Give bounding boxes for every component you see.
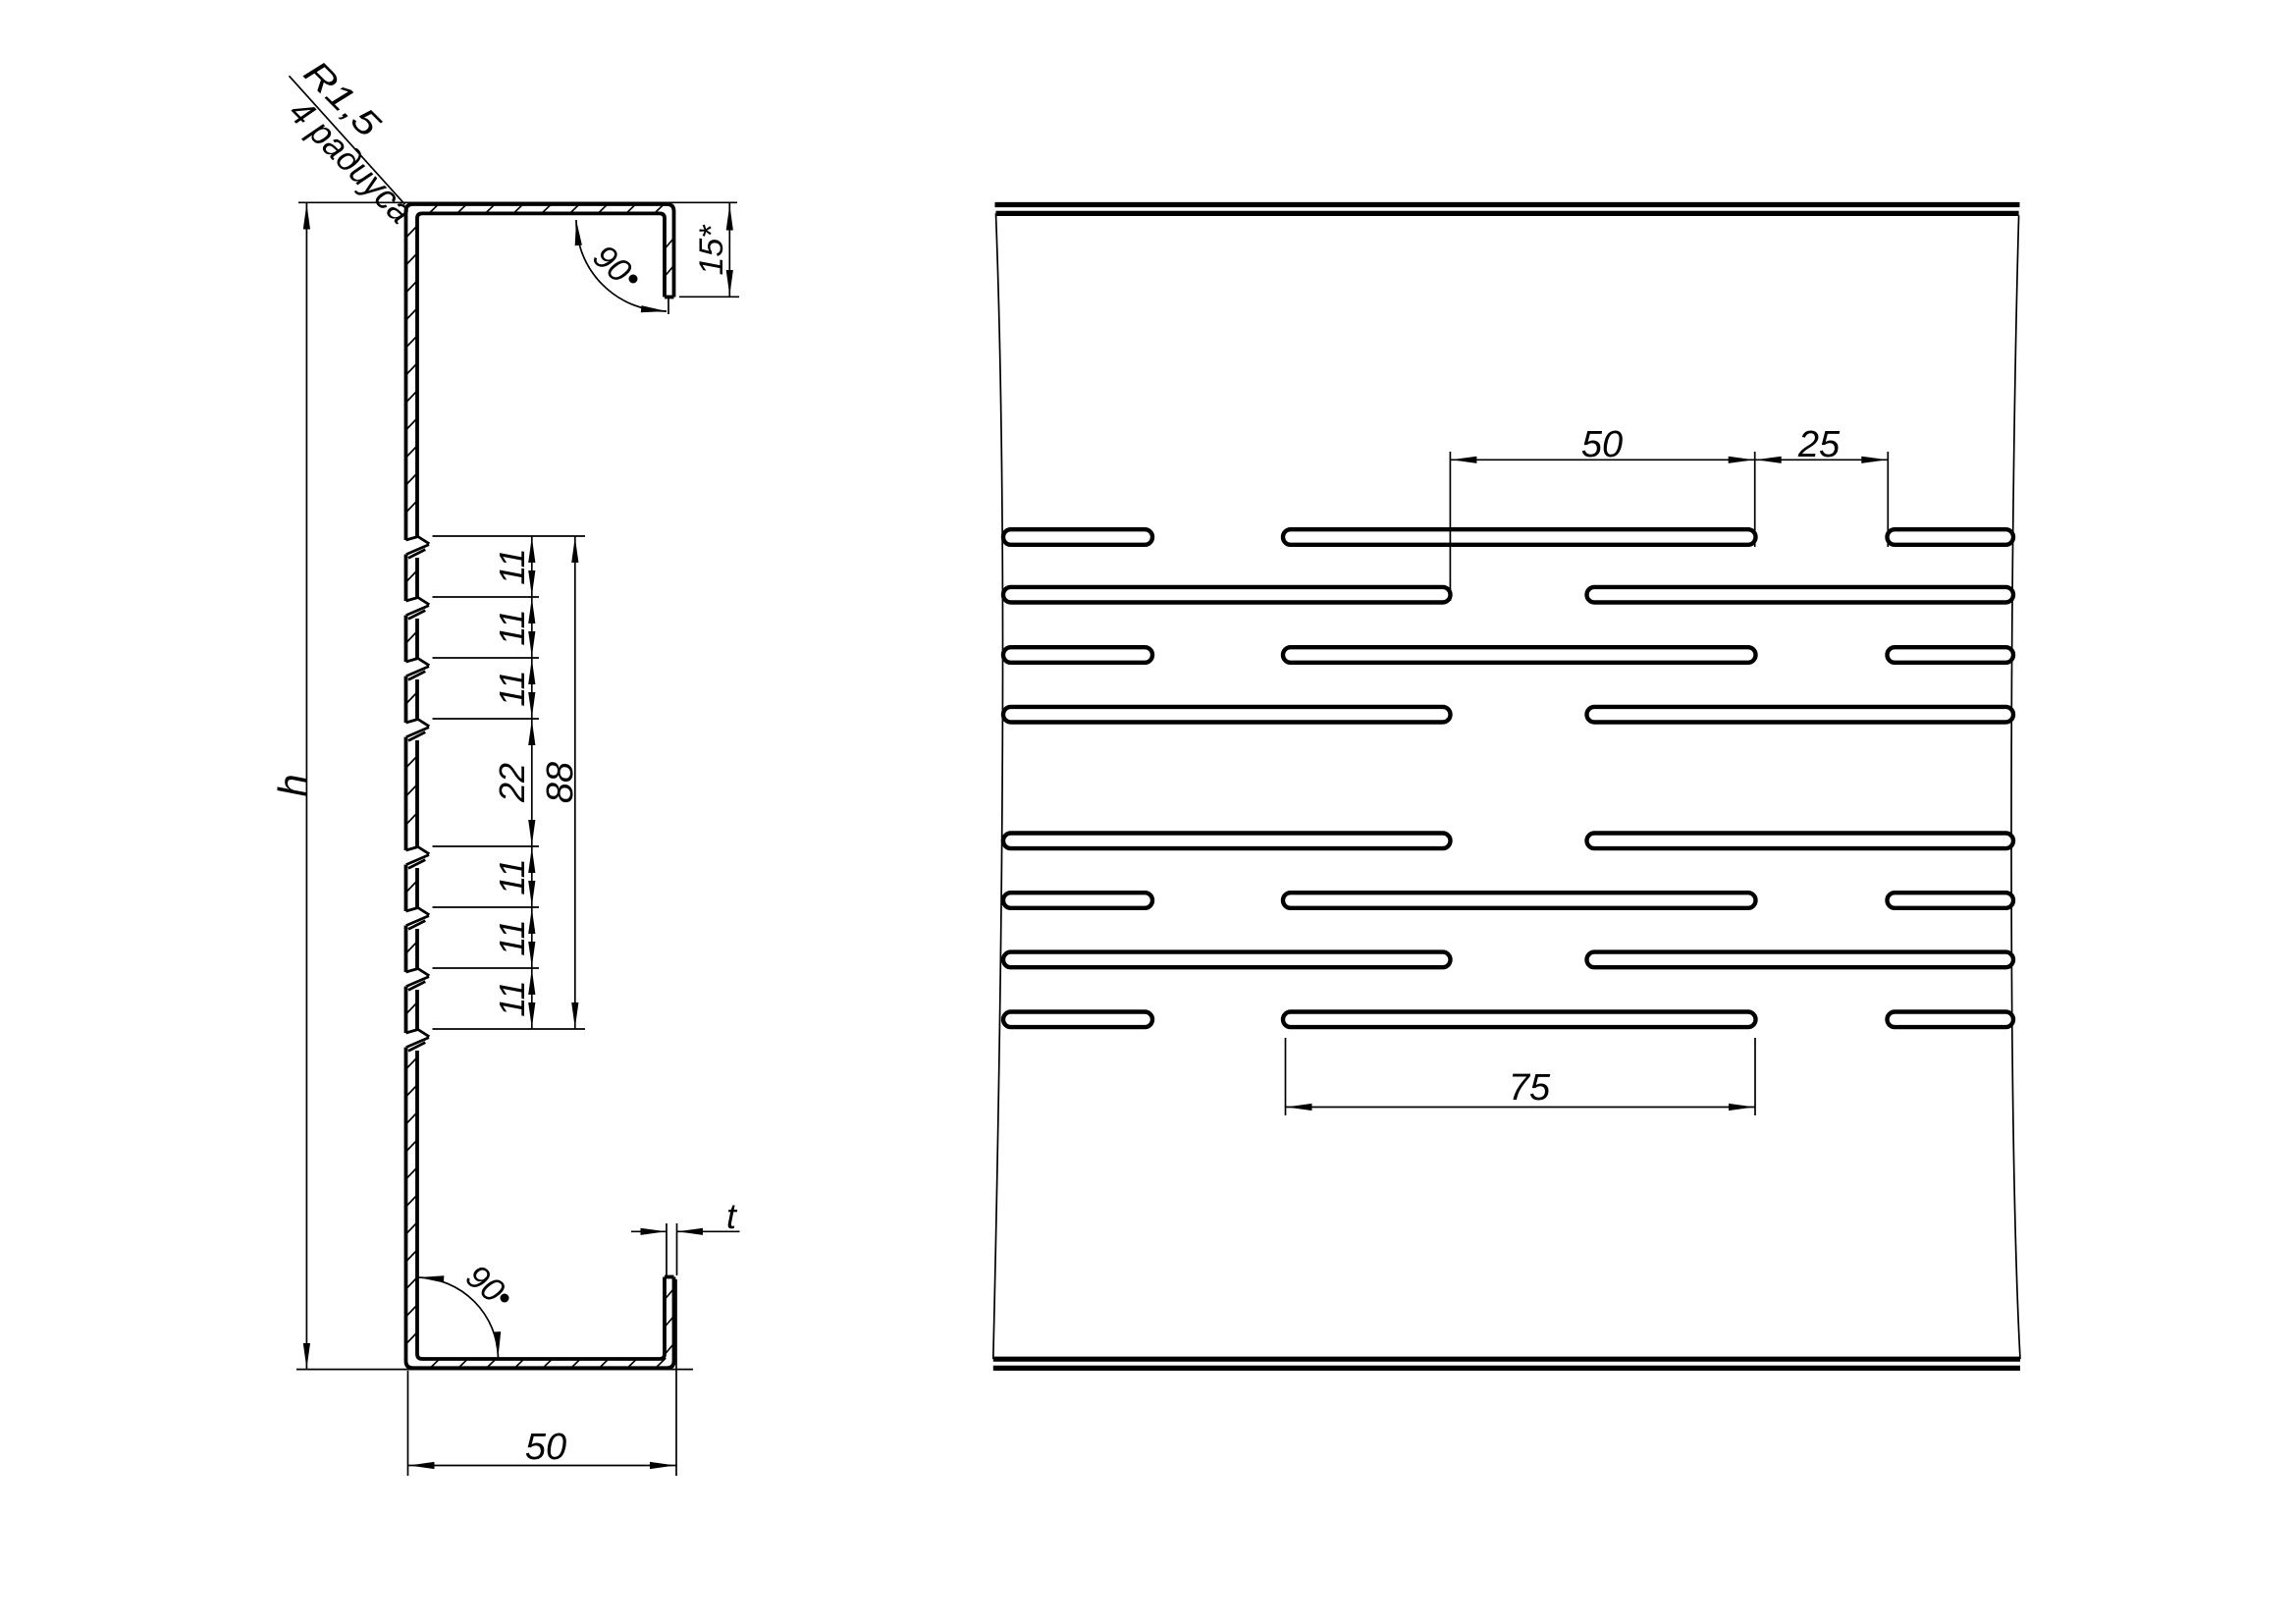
svg-text:25: 25 bbox=[1797, 424, 1841, 465]
svg-text:15*: 15* bbox=[693, 224, 730, 276]
svg-text:50: 50 bbox=[1581, 424, 1623, 465]
svg-text:11: 11 bbox=[492, 858, 532, 894]
svg-text:22: 22 bbox=[492, 763, 532, 803]
svg-text:11: 11 bbox=[492, 670, 532, 706]
svg-text:h: h bbox=[270, 774, 316, 796]
svg-text:11: 11 bbox=[492, 919, 532, 955]
svg-text:11: 11 bbox=[492, 980, 532, 1016]
svg-text:11: 11 bbox=[492, 609, 532, 645]
svg-text:88: 88 bbox=[540, 762, 581, 803]
svg-text:11: 11 bbox=[492, 548, 532, 584]
svg-text:50: 50 bbox=[525, 1427, 566, 1468]
svg-text:75: 75 bbox=[1509, 1067, 1551, 1109]
